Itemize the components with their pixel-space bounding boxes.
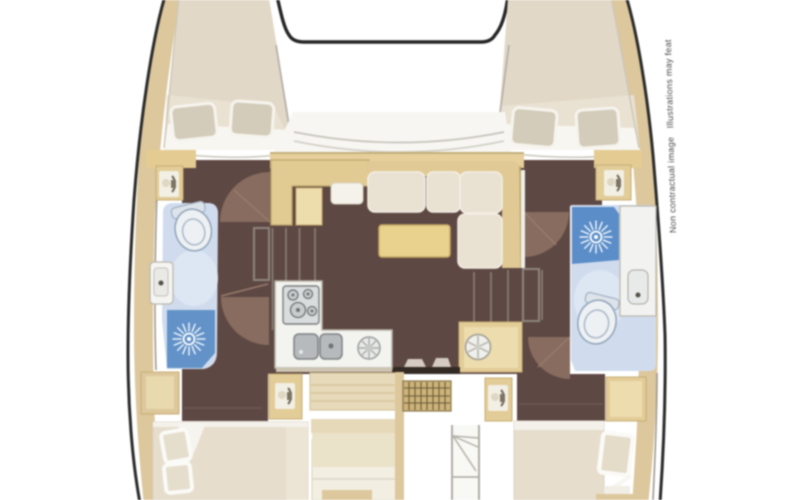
svg-text:Non contractual image Illust: Non contractual image Illustrations may … [663, 39, 678, 233]
